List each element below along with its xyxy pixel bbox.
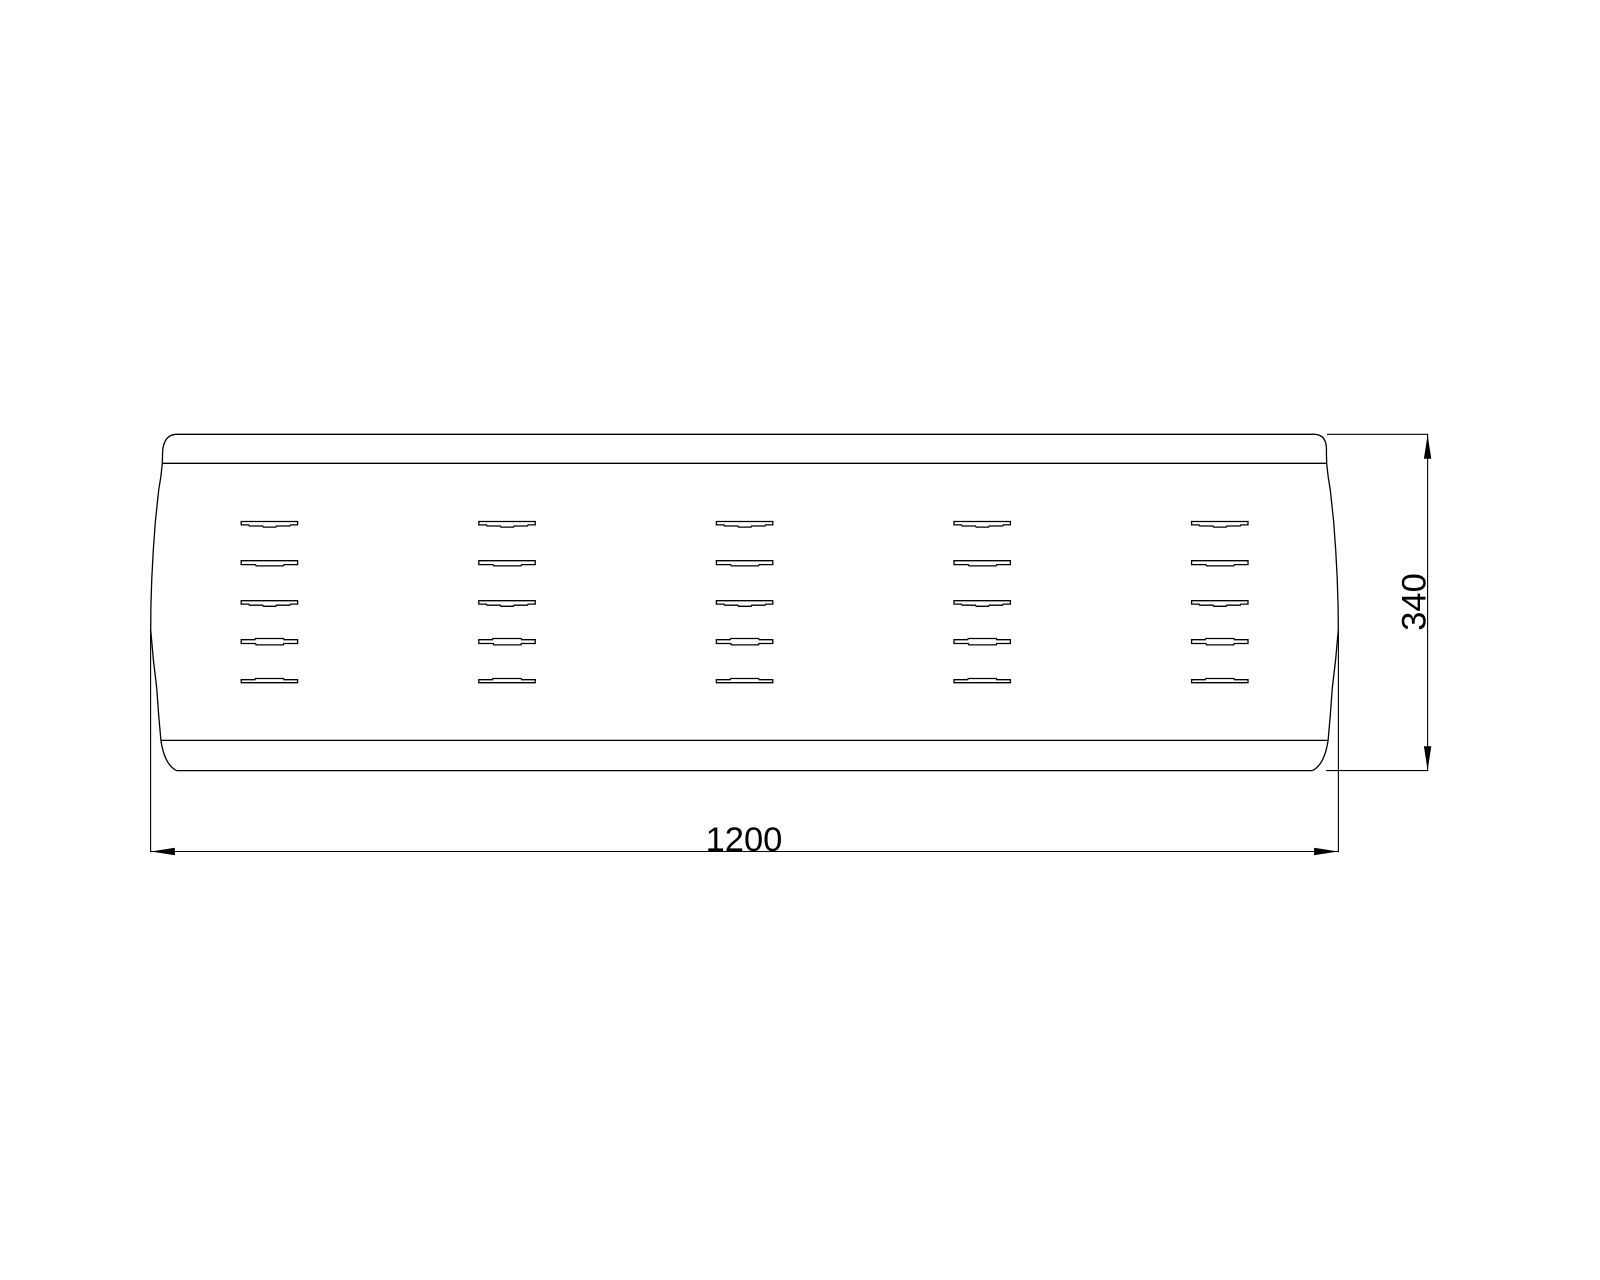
svg-text:340: 340	[1396, 573, 1434, 631]
svg-text:1200: 1200	[706, 821, 783, 859]
